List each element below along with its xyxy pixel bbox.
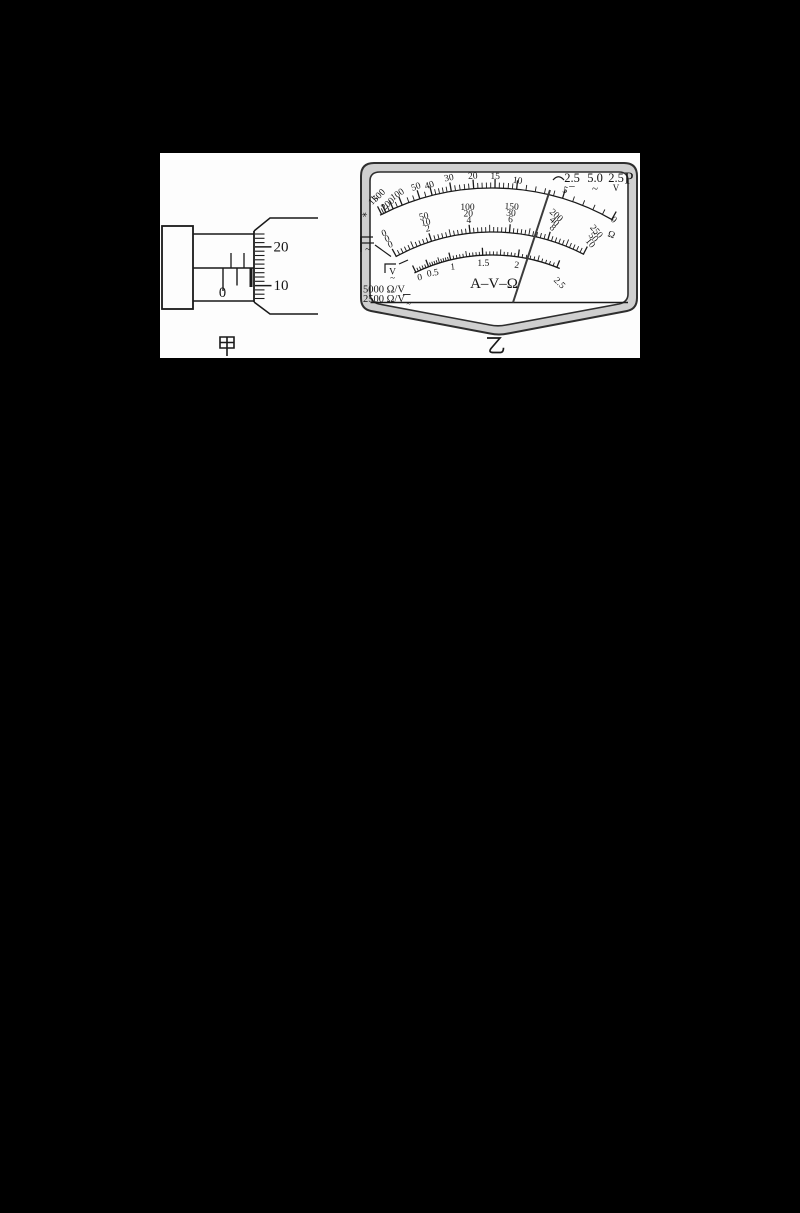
volt-tilde: ~ (390, 273, 395, 283)
dc-scale-tick (465, 229, 466, 234)
sensitivity-ac-tilde: ~ (407, 300, 412, 309)
page-background: 0 2010 1k50020010050403020151050Ω∗050100… (0, 0, 800, 1213)
ohm-scale-label: 10 (512, 176, 523, 187)
acdc-tilde: ~ (365, 245, 371, 256)
ohm-scale-label: 15 (490, 172, 500, 182)
instruments-figure: 0 2010 1k50020010050403020151050Ω∗050100… (160, 153, 640, 358)
multimeter: 1k50020010050403020151050Ω∗0501001502002… (360, 163, 637, 335)
dc-scale-tick (469, 225, 470, 233)
caption-yi (487, 338, 504, 353)
micrometer-frame (162, 226, 193, 309)
ac-scale-tick (522, 254, 523, 258)
ac-scale-label: 1.5 (477, 259, 489, 269)
corner-v-unit: V (613, 183, 620, 193)
dc-scale-tick (513, 228, 514, 233)
dc-scale-tick (517, 229, 518, 234)
caption-jia (220, 337, 234, 356)
ac-scale-tick (463, 254, 464, 258)
figure-panel: 0 2010 1k50020010050403020151050Ω∗050100… (160, 153, 640, 358)
ohm-scale-tick (464, 184, 465, 189)
main-scale-zero-label: 0 (219, 285, 226, 301)
sensitivity-ac: 2500 Ω/V (363, 294, 405, 305)
ac-scale-tick (460, 254, 461, 258)
thimble-ticks (255, 234, 272, 299)
thimble-scale-label: 10 (274, 278, 289, 294)
ac-symbol: ~ (592, 183, 598, 195)
thimble-scale-label: 20 (274, 239, 289, 255)
thimble-top-chamfer (254, 218, 318, 231)
dc-row-label: 4 (467, 216, 472, 226)
corner-p-label: P (624, 169, 633, 188)
dc-scale-tick (509, 224, 510, 232)
sleeve-ticks (223, 253, 251, 291)
ac-scale-label: 0.5 (426, 268, 440, 280)
ohm-scale-tick (469, 184, 470, 189)
dc-row-label: 6 (508, 215, 514, 225)
ohm-scale-label: 20 (468, 171, 478, 182)
thimble-bottom-chamfer (254, 302, 318, 314)
micrometer (162, 218, 318, 314)
dc-symbol: − (569, 180, 576, 194)
avo-label: A–V–Ω (470, 276, 518, 292)
thimble-labels: 2010 (274, 239, 289, 294)
